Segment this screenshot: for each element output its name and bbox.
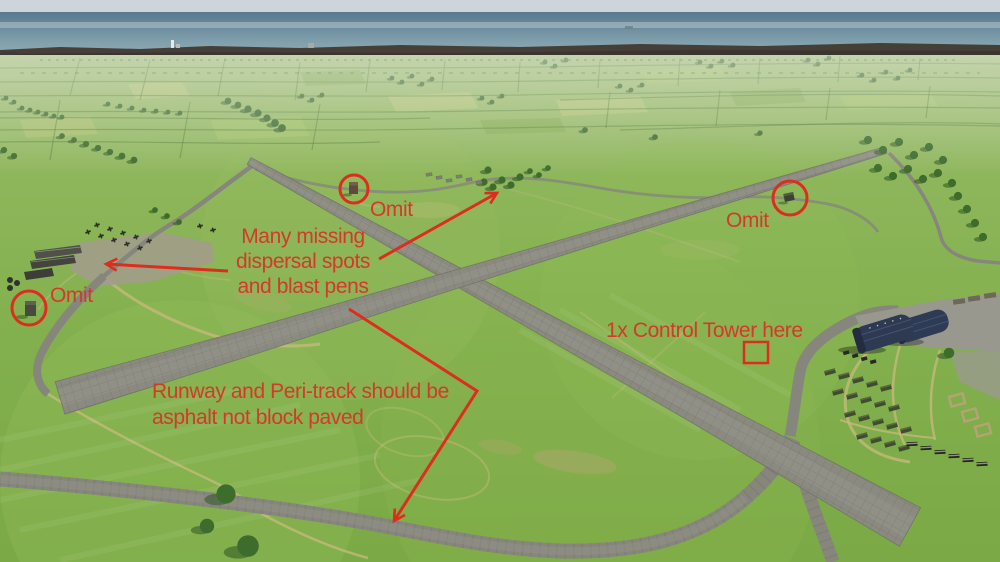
note-control-tower: 1x Control Tower here (606, 318, 803, 343)
note-dispersal-line1: Many missing (228, 224, 378, 249)
annotation-circle-left (12, 291, 46, 325)
note-omit-top-right: Omit (726, 208, 769, 233)
note-omit-top-center: Omit (370, 197, 413, 222)
annotated-airfield-screenshot: Omit Omit Omit Many missing dispersal sp… (0, 0, 1000, 562)
annotation-circle-top-right (773, 181, 807, 215)
note-dispersal: Many missing dispersal spots and blast p… (228, 224, 378, 299)
annotation-arrow-left (106, 264, 228, 271)
note-dispersal-line2: dispersal spots (228, 249, 378, 274)
note-surface-line2: asphalt not block paved (152, 405, 449, 431)
note-omit-left: Omit (50, 283, 93, 308)
annotation-square-control-tower (744, 342, 768, 363)
note-surface-line1: Runway and Peri-track should be (152, 379, 449, 405)
note-surface: Runway and Peri-track should be asphalt … (152, 379, 449, 431)
note-dispersal-line3: and blast pens (228, 274, 378, 299)
annotation-layer (0, 0, 1000, 562)
annotation-circle-top-center (340, 175, 368, 203)
